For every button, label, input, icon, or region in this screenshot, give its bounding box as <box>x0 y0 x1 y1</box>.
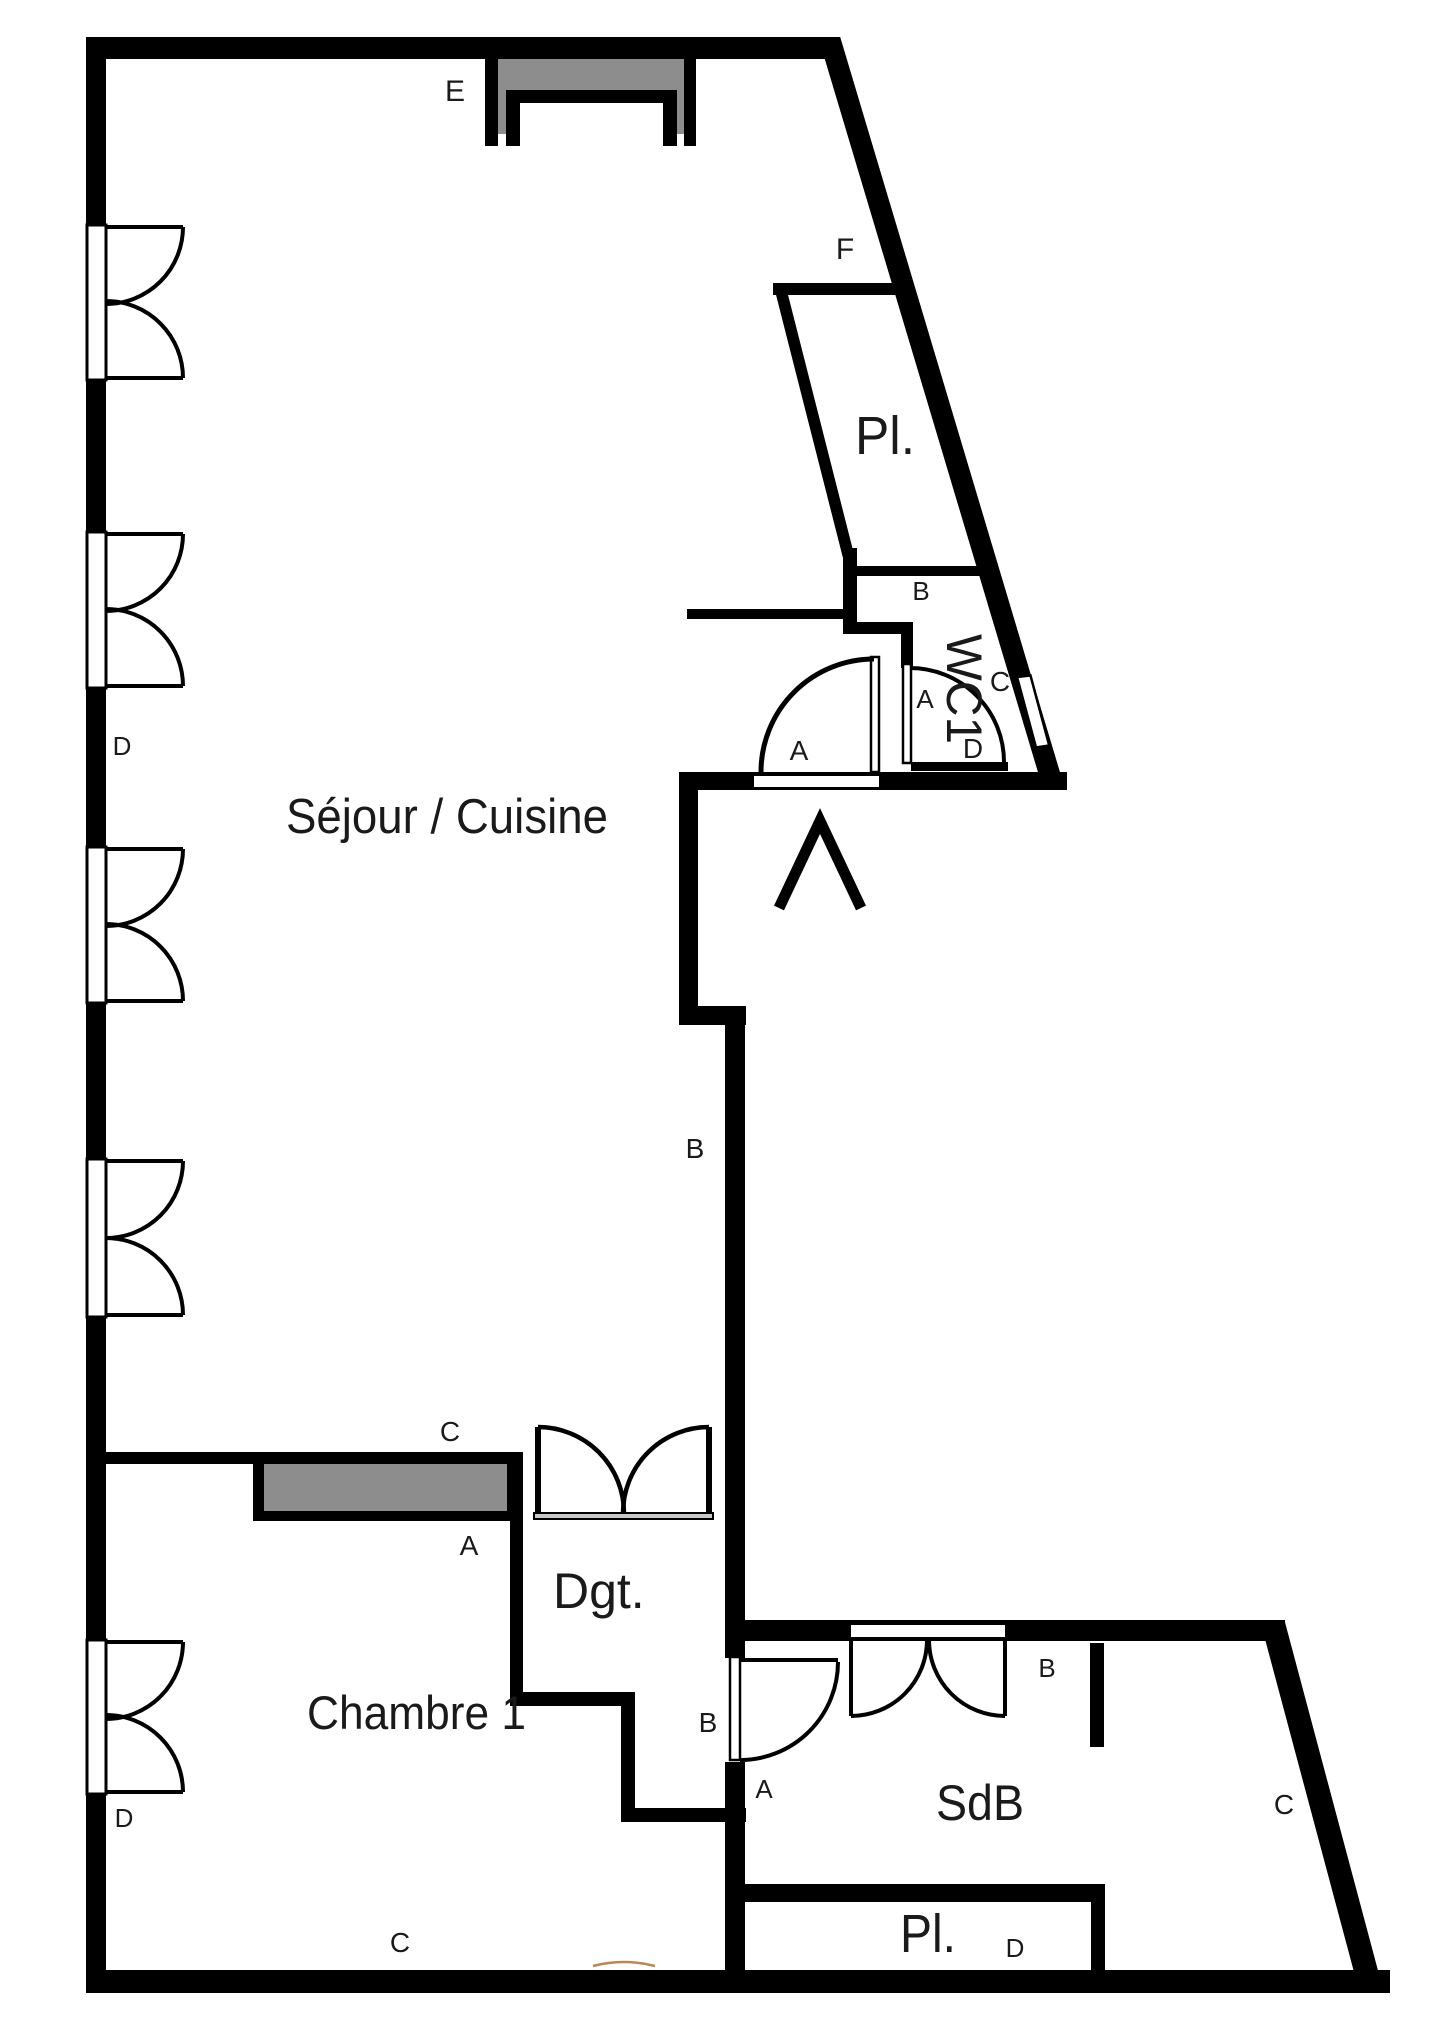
svg-text:C: C <box>390 1927 410 1958</box>
svg-text:D: D <box>1006 1933 1025 1963</box>
svg-text:F: F <box>836 233 854 266</box>
svg-text:D: D <box>113 731 132 761</box>
svg-text:Séjour / Cuisine: Séjour / Cuisine <box>286 790 608 844</box>
svg-text:Pl.: Pl. <box>855 406 915 466</box>
svg-text:WC1: WC1 <box>936 634 992 744</box>
svg-text:B: B <box>699 1707 718 1738</box>
svg-text:E: E <box>445 75 465 108</box>
svg-text:Dgt.: Dgt. <box>553 1563 645 1619</box>
svg-text:SdB: SdB <box>936 1775 1024 1831</box>
svg-text:Pl.: Pl. <box>900 1904 956 1964</box>
svg-text:C: C <box>440 1416 460 1447</box>
svg-text:A: A <box>755 1774 773 1804</box>
svg-text:A: A <box>790 735 809 766</box>
svg-text:B: B <box>686 1133 705 1164</box>
svg-text:B: B <box>1038 1653 1055 1683</box>
svg-text:C: C <box>1274 1789 1294 1820</box>
svg-text:B: B <box>912 576 929 606</box>
svg-text:C: C <box>990 666 1010 697</box>
svg-text:D: D <box>963 733 983 764</box>
svg-text:Chambre 1: Chambre 1 <box>307 1686 526 1739</box>
svg-text:A: A <box>460 1530 479 1561</box>
svg-text:D: D <box>115 1803 134 1833</box>
svg-text:A: A <box>916 684 934 714</box>
